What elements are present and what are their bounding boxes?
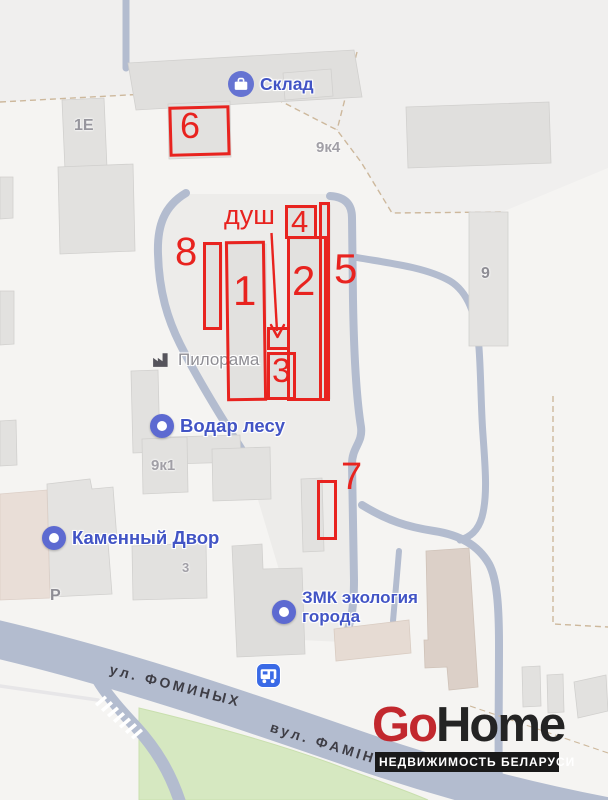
annotation-box-8	[203, 242, 222, 330]
annotation-number-6: 6	[180, 108, 200, 144]
poi-kamenny-dvor-label: Каменный Двор	[72, 527, 219, 549]
factory-icon	[151, 349, 172, 370]
annotation-box-5	[319, 202, 330, 401]
gohome-logo-home: Home	[436, 698, 564, 752]
gohome-logo-go: Go	[372, 698, 436, 752]
building-label-3: 3	[182, 560, 189, 575]
annotation-number-8: 8	[175, 232, 197, 272]
org-pin-icon	[272, 600, 296, 624]
building-label-1e: 1Е	[74, 117, 94, 135]
bus-stop-icon[interactable]	[256, 663, 281, 693]
poi-kamenny-dvor[interactable]: Каменный Двор	[42, 526, 219, 550]
annotation-box-dush	[267, 327, 290, 350]
gohome-tagline: НЕДВИЖИМОСТЬ БЕЛАРУСИ	[375, 752, 559, 772]
building-label-9: 9	[481, 265, 490, 283]
annotation-number-7: 7	[341, 458, 362, 496]
annotation-box-7	[317, 480, 337, 540]
building-top-right	[406, 102, 551, 168]
annotation-number-4: 4	[291, 206, 308, 237]
poi-vodar-lesu[interactable]: Водар лесу	[150, 414, 285, 438]
poi-sklad-label: Склад	[260, 74, 314, 95]
org-pin-icon	[42, 526, 66, 550]
poi-zmk[interactable]: ЗМК экология города	[272, 589, 418, 626]
poi-vodar-lesu-label: Водар лесу	[180, 415, 285, 437]
annotation-number-5: 5	[334, 248, 357, 290]
footpath	[0, 686, 98, 700]
gohome-watermark: GoHome НЕДВИЖИМОСТЬ БЕЛАРУСИ	[372, 700, 572, 772]
poi-zmk-label: ЗМК экология города	[302, 589, 418, 626]
annotation-number-1: 1	[233, 270, 256, 312]
annotation-box-1	[225, 241, 267, 402]
building-beige-se	[424, 548, 478, 690]
building-label-9k1: 9к1	[151, 457, 175, 474]
gohome-logo: GoHome	[372, 700, 572, 751]
warehouse-icon	[228, 71, 254, 97]
poi-sklad[interactable]: Склад	[228, 71, 314, 97]
building-3	[132, 543, 207, 600]
annotation-number-2: 2	[292, 260, 315, 302]
road-east-branch	[354, 257, 486, 540]
org-pin-icon	[150, 414, 174, 438]
annotation-number-3: 3	[272, 354, 291, 388]
building-label-9k4: 9к4	[316, 139, 340, 156]
annotation-dush-label: душ	[224, 202, 275, 229]
parking-label: Р	[50, 587, 61, 605]
map-canvas[interactable]: Склад Пилорама Водар лесу Каменный Двор …	[0, 0, 608, 800]
